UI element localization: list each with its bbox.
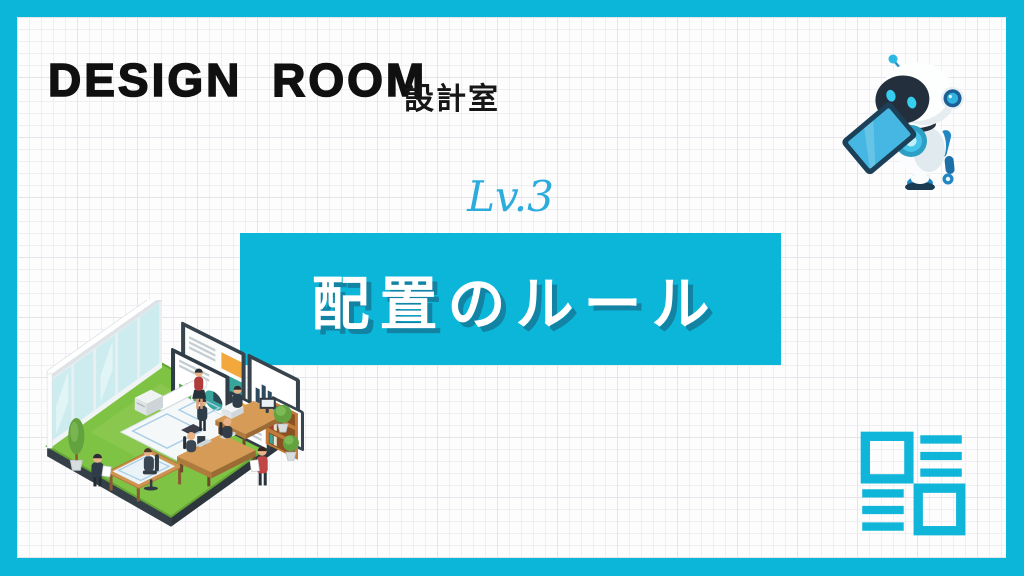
banner-title: 配置のルール: [301, 257, 719, 341]
robot-mascot-illustration: [838, 40, 980, 190]
level-label: Lv.3: [240, 172, 781, 221]
page-title: DESIGN ROOM: [48, 56, 427, 104]
page-subtitle-japanese: 設計室: [404, 74, 500, 118]
isometric-design-office-illustration: [30, 300, 304, 552]
layout-wireframe-icon: [856, 428, 968, 538]
title-banner: 配置のルール: [240, 233, 781, 365]
slide: DESIGN ROOM 設計室 Lv.3 配置のルール: [0, 0, 1024, 576]
